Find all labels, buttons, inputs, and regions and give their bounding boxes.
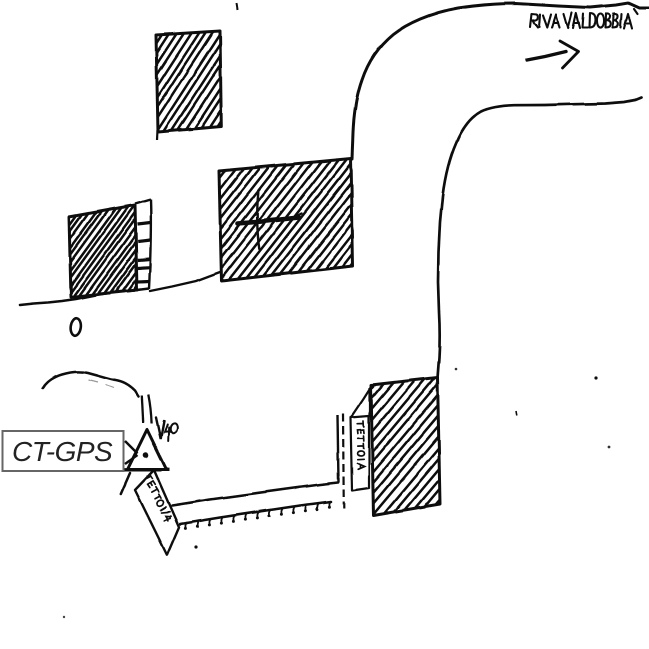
svg-text:CT-GPS: CT-GPS [12,436,113,467]
